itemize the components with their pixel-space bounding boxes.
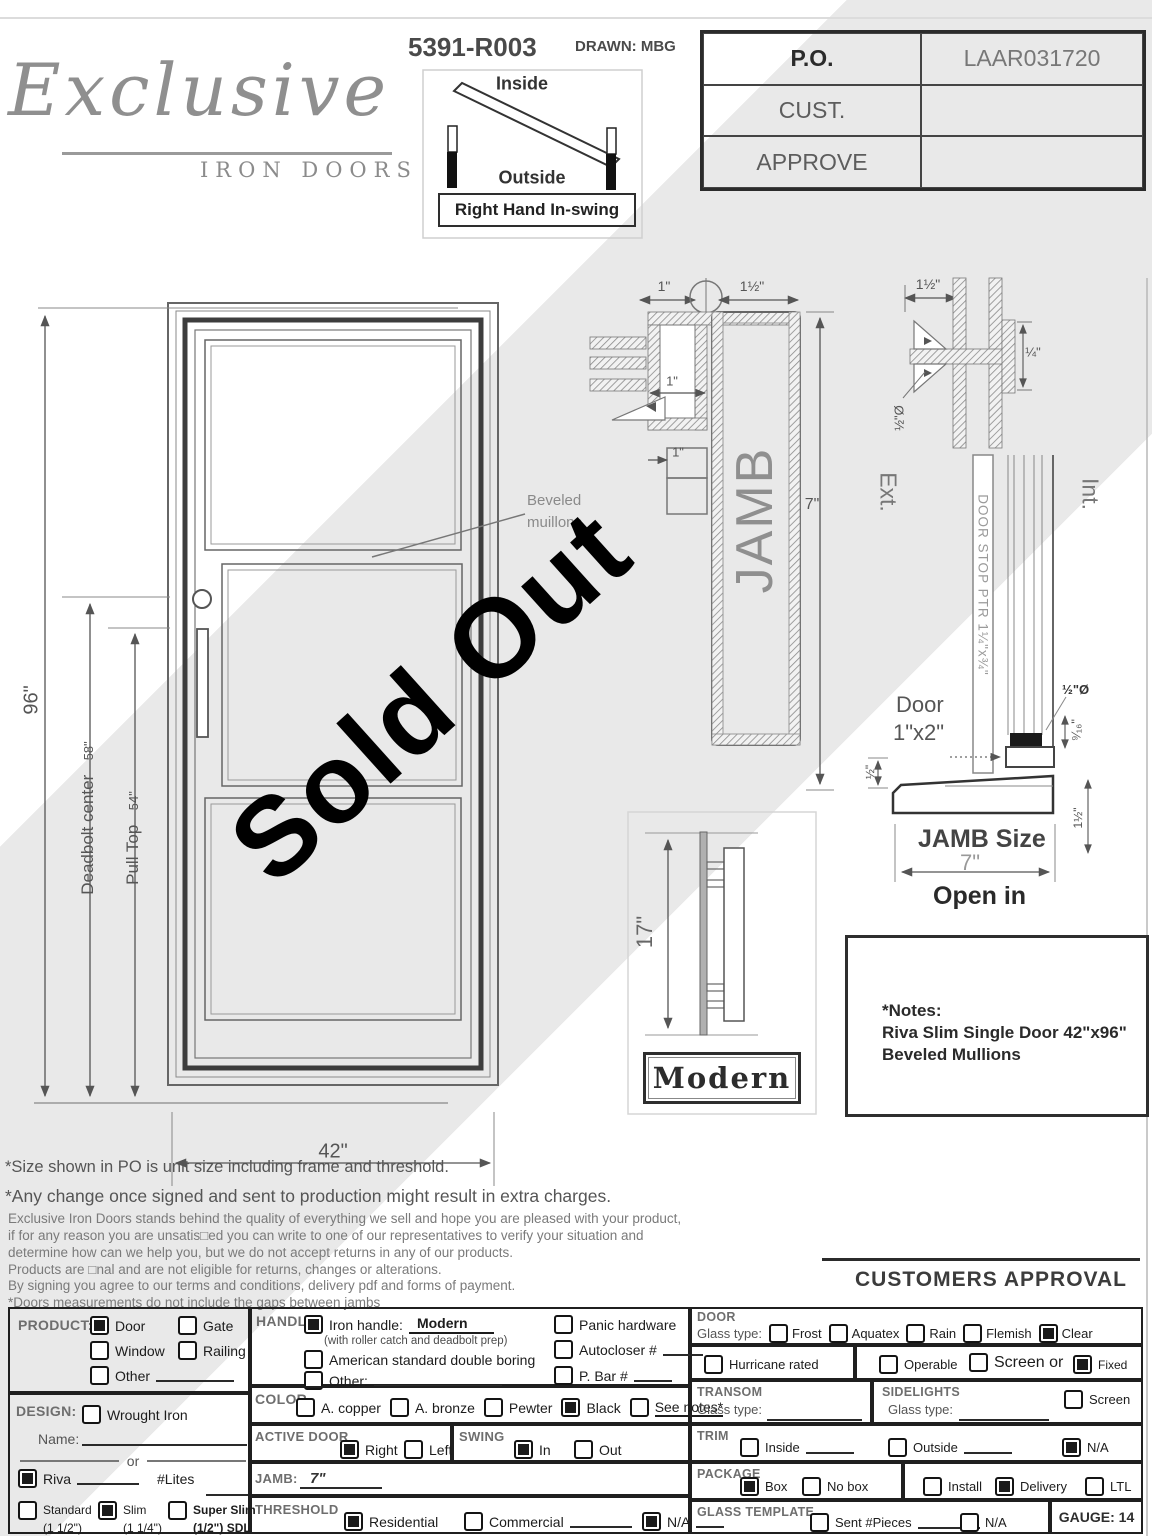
checkbox-fixed[interactable] (1073, 1355, 1092, 1374)
swing-inside-label: Inside (496, 74, 548, 95)
checkbox-wrought-iron[interactable] (82, 1405, 101, 1424)
po-label: P.O. (703, 33, 921, 85)
design-name-label: Name: (38, 1431, 79, 1447)
transom-glass-input[interactable] (767, 1408, 862, 1421)
product-other-label: Other (115, 1368, 150, 1384)
glass-frost-label: Frost (792, 1326, 822, 1341)
operable-label: Operable (904, 1357, 957, 1372)
glass-flemish-label: Flemish (986, 1326, 1032, 1341)
door-stop-label: DOOR STOP PTR 1¼"x¾" (976, 494, 991, 675)
hurricane-box: Hurricane rated (690, 1345, 855, 1380)
pull-top-value: 54" (126, 791, 141, 810)
active-left-label: Left (429, 1442, 452, 1458)
checkbox-color-black[interactable] (561, 1398, 580, 1417)
door-glass-box: DOOR Glass type: Frost Aquatex Rain Flem… (690, 1307, 1143, 1345)
jamb-height-dim: 7" (805, 496, 820, 514)
jamb-dim-1b: 1" (666, 374, 678, 389)
trim-outside-label: Outside (913, 1440, 958, 1455)
handle-height-dim: 17" (632, 916, 658, 948)
section-dim-half-dia2: ½"Ø (1062, 682, 1089, 697)
glass-template-label: GLASS TEMPLATE (697, 1505, 814, 1519)
screen-or-label: Screen or (994, 1354, 1063, 1372)
checkbox-sent-pieces[interactable] (810, 1513, 829, 1532)
checkbox-hurricane[interactable] (704, 1355, 723, 1374)
design-label: DESIGN: (16, 1403, 76, 1419)
checkbox-package-box[interactable] (740, 1477, 759, 1496)
disclaimer-line7: By signing you agree to our terms and co… (8, 1278, 515, 1293)
design-name-input[interactable] (82, 1433, 247, 1446)
cust-label: CUST. (703, 85, 921, 137)
handle-box: HANDLE Iron handle:Modern (with roller c… (250, 1307, 690, 1386)
trim-inside-label: Inside (765, 1440, 800, 1455)
disclaimer-line5: determine how can we help you, but we do… (8, 1245, 513, 1260)
checkbox-screen-or[interactable] (969, 1353, 988, 1372)
swing-in-label: In (539, 1442, 551, 1458)
signature-line[interactable] (822, 1258, 1140, 1261)
checkbox-threshold-commercial[interactable] (464, 1512, 483, 1531)
door-glass-label: DOOR (697, 1310, 736, 1324)
checkbox-operable[interactable] (879, 1355, 898, 1374)
jamb-box: JAMB: 7" (250, 1462, 690, 1496)
checkbox-active-left[interactable] (404, 1440, 423, 1459)
standard-sub: (1 1/2") (43, 1521, 82, 1535)
p-bar-label: P. Bar # (579, 1368, 628, 1384)
fixed-label: Fixed (1098, 1358, 1127, 1372)
checkbox-threshold-residential[interactable] (344, 1512, 363, 1531)
super-slim-label: Super Slim (193, 1503, 256, 1517)
swing-caption: Right Hand In-swing (455, 200, 619, 220)
checkbox-threshold-na[interactable] (642, 1512, 661, 1531)
sent-pieces-label: Sent #Pieces (835, 1515, 912, 1530)
autocloser-label: Autocloser # (579, 1342, 657, 1358)
operable-fixed-box: Operable Screen or Fixed (855, 1345, 1143, 1380)
pull-top-dim-label: Pull Top 54" (123, 791, 143, 885)
iron-handle-value[interactable]: Modern (409, 1315, 494, 1334)
glass-rain-label: Rain (929, 1326, 956, 1341)
or-label: or (127, 1453, 139, 1469)
checkbox-glass-rain[interactable] (906, 1324, 925, 1343)
super-slim-sub: (1/2") SDL (193, 1521, 251, 1535)
lites-label: #Lites (157, 1471, 194, 1487)
install-label: Install (948, 1479, 982, 1494)
notes-line2: Beveled Mullions (882, 1044, 1146, 1066)
glass-type-label: Glass type: (697, 1326, 762, 1341)
jamb-size-label: JAMB Size (918, 825, 1046, 854)
sidelights-label: SIDELIGHTS (882, 1385, 960, 1399)
notes-title: *Notes: (882, 1000, 1146, 1022)
p-bar-input[interactable] (634, 1369, 672, 1382)
active-door-label: ACTIVE DOOR (255, 1429, 349, 1444)
checkbox-glass-template-na[interactable] (960, 1513, 979, 1532)
checkbox-iron-handle[interactable] (304, 1315, 323, 1334)
sidelights-glass-label: Glass type: (888, 1402, 953, 1417)
product-other-input[interactable] (156, 1369, 234, 1382)
checkbox-autocloser[interactable] (554, 1340, 573, 1359)
panic-hardware-label: Panic hardware (579, 1317, 676, 1333)
checkbox-see-notes[interactable] (630, 1398, 649, 1417)
color-box: COLOR A. copper A. bronze Pewter Black S… (250, 1386, 690, 1424)
drawn-by: DRAWN: MBG (575, 38, 676, 55)
checkbox-standard[interactable] (18, 1501, 37, 1520)
threshold-box: THRESHOLD Residential Commercial N/A (250, 1496, 690, 1534)
hurricane-label: Hurricane rated (729, 1357, 819, 1372)
deadbolt-dim-label: Deadbolt center 58" (78, 741, 98, 895)
glass-template-na-label: N/A (985, 1515, 1007, 1530)
product-label: PRODUCT: (18, 1317, 93, 1333)
slim-sub: (1 1/4") (123, 1521, 162, 1535)
checkbox-glass-frost[interactable] (769, 1324, 788, 1343)
threshold-na-label: N/A (667, 1514, 690, 1530)
jamb-dim-1c: 1" (672, 445, 684, 460)
slim-label: Slim (123, 1503, 146, 1517)
product-gate-label: Gate (203, 1318, 233, 1334)
package-box: PACKAGE Box No box (690, 1462, 903, 1500)
checkbox-ltl[interactable] (1085, 1477, 1104, 1496)
glass-clear-label: Clear (1062, 1326, 1093, 1341)
swing-outside-label: Outside (498, 168, 565, 189)
checkbox-riva[interactable] (18, 1469, 37, 1488)
pull-top-text: Pull Top (123, 825, 142, 885)
checkbox-product-railing[interactable] (178, 1341, 197, 1360)
checkbox-swing-out[interactable] (574, 1440, 593, 1459)
approve-value[interactable] (921, 136, 1143, 188)
trim-box: TRIM Inside Outside N/A (690, 1424, 1143, 1462)
int-label: Int. (1077, 478, 1104, 510)
open-in-label: Open in (933, 882, 1026, 911)
jamb-big-label: JAMB (725, 447, 785, 594)
notes-box: *Notes: Riva Slim Single Door 42"x96" Be… (845, 935, 1149, 1117)
checkbox-glass-aquatex[interactable] (829, 1324, 848, 1343)
design-box: DESIGN: Wrought Iron Name: or Riva #Lite… (8, 1393, 250, 1534)
deadbolt-text: Deadbolt center (78, 775, 97, 895)
checkbox-color-pewter[interactable] (484, 1398, 503, 1417)
jamb-form-label: JAMB: (255, 1471, 298, 1486)
checkbox-trim-na[interactable] (1062, 1438, 1081, 1457)
checkbox-super-slim[interactable] (168, 1501, 187, 1520)
threshold-commercial-input[interactable] (570, 1515, 632, 1528)
wall-section-drawing (903, 278, 1032, 448)
iron-handle-label: Iron handle: (329, 1317, 403, 1333)
package-box-label: Box (765, 1479, 787, 1494)
gauge-box: GAUGE: 14 (1050, 1500, 1143, 1534)
po-table: P.O. LAAR031720 CUST. APPROVE (700, 30, 1146, 191)
wrought-iron-label: Wrought Iron (107, 1407, 188, 1423)
swing-label: SWING (459, 1429, 505, 1444)
checkbox-trim-outside[interactable] (888, 1438, 907, 1457)
checkbox-product-door[interactable] (90, 1316, 109, 1335)
lites-input[interactable] (206, 1483, 248, 1496)
active-door-box: ACTIVE DOOR Right Left (250, 1424, 452, 1462)
cust-value[interactable] (921, 85, 1143, 137)
notes-line1: Riva Slim Single Door 42"x96" (882, 1022, 1146, 1044)
company-logo: Exclusive (8, 48, 390, 132)
checkbox-american-boring[interactable] (304, 1350, 323, 1369)
delivery-label: Delivery (1020, 1479, 1067, 1494)
trim-outside-input[interactable] (964, 1441, 1012, 1454)
sidelights-box: SIDELIGHTS Glass type: Screen (872, 1380, 1143, 1424)
po-value[interactable]: LAAR031720 (921, 33, 1143, 85)
standard-label: Standard (43, 1503, 92, 1517)
order-spec-sheet: Exclusive IRON DOORS 5391-R003 DRAWN: MB… (0, 0, 1152, 1536)
approve-label: APPROVE (703, 136, 921, 188)
customers-approval-title: CUSTOMERS APPROVAL (855, 1268, 1127, 1292)
gauge-label: GAUGE: 14 (1059, 1509, 1134, 1525)
jamb-size-value: 7" (960, 850, 980, 876)
trim-inside-input[interactable] (806, 1441, 854, 1454)
shipping-box: Install Delivery LTL (903, 1462, 1143, 1500)
sidelights-glass-input[interactable] (959, 1408, 1049, 1421)
riva-input[interactable] (77, 1472, 139, 1485)
section-dim-top: 1½" (916, 276, 940, 292)
jamb-dim-1half: 1½" (740, 278, 764, 294)
iron-handle-note: (with roller catch and deadbolt prep) (324, 1335, 507, 1347)
drawing-number: 5391-R003 (408, 32, 537, 63)
disclaimer-line2: *Any change once signed and sent to prod… (5, 1186, 611, 1207)
trim-label: TRIM (697, 1429, 729, 1443)
product-railing-label: Railing (203, 1343, 246, 1359)
jamb-value-underline (300, 1476, 382, 1489)
threshold-residential-label: Residential (369, 1514, 438, 1530)
product-window-label: Window (115, 1343, 165, 1359)
checkbox-delivery[interactable] (995, 1477, 1014, 1496)
disclaimer-line3: Exclusive Iron Doors stands behind the q… (8, 1211, 681, 1226)
riva-label: Riva (43, 1471, 71, 1487)
threshold-label: THRESHOLD (255, 1502, 339, 1517)
jamb-dim-1a: 1" (658, 278, 671, 294)
transom-box: TRANSOM Glass type: (690, 1380, 872, 1424)
checkbox-product-other[interactable] (90, 1366, 109, 1385)
section-dim-half: ½" (863, 765, 877, 779)
package-no-box-label: No box (827, 1479, 868, 1494)
checkbox-swing-in[interactable] (514, 1440, 533, 1459)
checkbox-package-no-box[interactable] (802, 1477, 821, 1496)
disclaimer-line6: Products are □nal and are not eligible f… (8, 1262, 442, 1277)
glass-template-box: GLASS TEMPLATE Sent #Pieces N/A (690, 1500, 1050, 1534)
swing-caption-box: Right Hand In-swing (438, 193, 636, 227)
logo-subtitle: IRON DOORS (200, 158, 418, 182)
checkbox-product-gate[interactable] (178, 1316, 197, 1335)
logo-script-text: Exclusive (8, 48, 390, 132)
color-black-label: Black (586, 1400, 620, 1416)
logo-rule (62, 152, 392, 155)
disclaimer-line1: *Size shown in PO is unit size including… (5, 1158, 449, 1177)
swing-box: SWING In Out (452, 1424, 690, 1462)
ltl-label: LTL (1110, 1479, 1131, 1494)
or-divider: or (20, 1453, 246, 1469)
threshold-commercial-label: Commercial (489, 1514, 564, 1530)
checkbox-install[interactable] (923, 1477, 942, 1496)
section-dim-nine-sixteenths: ⁹⁄₁₆" (1069, 719, 1084, 741)
sidelights-screen-label: Screen (1089, 1392, 1130, 1407)
color-pewter-label: Pewter (509, 1400, 553, 1416)
checkbox-active-right[interactable] (340, 1440, 359, 1459)
checkbox-glass-clear[interactable] (1039, 1324, 1058, 1343)
trim-na-label: N/A (1087, 1440, 1109, 1455)
color-copper-label: A. copper (321, 1400, 381, 1416)
checkbox-p-bar[interactable] (554, 1366, 573, 1385)
checkbox-trim-inside[interactable] (740, 1438, 759, 1457)
disclaimer-line4: if for any reason you are unsatis□ed you… (8, 1228, 644, 1243)
checkbox-color-copper[interactable] (296, 1398, 315, 1417)
swing-out-label: Out (599, 1442, 622, 1458)
deadbolt-value: 58" (81, 741, 96, 760)
transom-glass-label: Glass type: (697, 1402, 762, 1417)
section-dim-half-dia: ½"Ø (892, 405, 907, 431)
color-bronze-label: A. bronze (415, 1400, 475, 1416)
checkbox-product-window[interactable] (90, 1341, 109, 1360)
glass-aquatex-label: Aquatex (852, 1326, 900, 1341)
height-dim-label: 96" (21, 685, 44, 714)
door-label-line2: 1"x2" (893, 720, 944, 746)
checkbox-color-bronze[interactable] (390, 1398, 409, 1417)
checkbox-glass-flemish[interactable] (963, 1324, 982, 1343)
transom-label: TRANSOM (697, 1385, 762, 1399)
product-box: PRODUCT: Door Gate Window Railing Other (8, 1307, 250, 1393)
product-door-label: Door (115, 1318, 145, 1334)
section-dim-one-and-half: 1½" (1071, 808, 1085, 829)
active-right-label: Right (365, 1442, 398, 1458)
section-dim-quarter: ¼" (1025, 345, 1040, 360)
ext-label: Ext. (875, 472, 902, 512)
checkbox-sidelights-screen[interactable] (1064, 1390, 1083, 1409)
handle-style-box: Modern (643, 1052, 801, 1104)
american-boring-label: American standard double boring (329, 1352, 535, 1368)
handle-style-label: Modern (653, 1061, 792, 1095)
checkbox-slim[interactable] (98, 1501, 117, 1520)
checkbox-panic-hardware[interactable] (554, 1315, 573, 1334)
door-label-line1: Door (896, 692, 944, 718)
